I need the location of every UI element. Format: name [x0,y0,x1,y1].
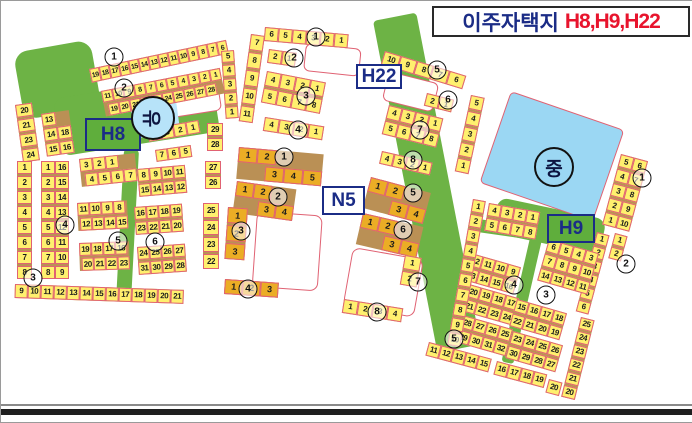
lot-cell: 10 [616,216,633,232]
lot-row: 3 [17,191,32,204]
lot-cell: 5 [179,145,193,159]
lot-cell: 4 [465,111,482,128]
lot-cell: 4 [292,29,307,44]
lot-cell: 16 [55,161,69,174]
district-marker-h8-4: 4 [56,216,75,235]
lot-cell: 4 [222,64,236,77]
lot-cell: 9 [55,266,69,279]
lot-cell: 16 [134,206,147,220]
district-marker-h8-1: 1 [105,48,124,67]
lot-row: 1 [471,199,486,214]
lot-cell: 5 [278,28,293,43]
lot-cell: 1 [403,255,422,272]
district-marker-h22-7: 7 [411,121,430,140]
map-frame: 1918171615141312111098765432111109876543… [0,0,692,423]
lot-cell: 23 [203,237,219,252]
lot-block-h8-col-ne: 54321 [221,50,239,119]
lot-cell: 9 [149,167,162,181]
lot-cell: 8 [113,200,126,214]
lot-row: 11 [239,105,255,123]
lot-row: 24 [203,220,219,235]
district-marker-h8-6: 6 [146,233,165,252]
lot-cell: 8 [453,302,468,317]
lot-block-h8-col-e3: 25242322 [203,203,219,269]
lot-row: 23 [571,344,587,359]
lot-cell: 13 [162,181,175,195]
lot-cell: 5 [460,258,475,273]
lot-cell: 31 [138,261,151,275]
lot-cell: 7 [249,34,265,52]
district-marker-n5-4: 4 [239,280,258,299]
lot-row: 710 [41,251,69,264]
lot-block-h22-col-e: 54321 [455,95,485,174]
lot-cell: 6 [17,236,32,249]
district-marker-h22-4: 4 [289,121,308,140]
lot-cell: 19 [79,243,91,256]
lot-row: 27 [205,161,221,174]
district-marker-h9-1: 1 [633,169,652,188]
lot-cell: 16 [59,140,75,155]
lot-cell: 28 [174,259,187,273]
bottom-rule-thin [1,404,692,406]
lot-cell: 1 [307,124,324,140]
district-marker-h9-3: 3 [537,286,556,305]
lot-cell: 30 [150,260,163,274]
lot-cell: 20 [545,379,562,396]
area-label-h9: H9 [547,214,595,243]
lot-cell: 13 [41,112,57,127]
lot-cell: 18 [551,310,567,326]
lot-cell: 3 [461,126,478,143]
lot-block-h8-col-e1: 2928 [207,123,223,151]
lot-block-h8-row-765: 765 [155,145,192,162]
lot-cell: 26 [205,176,221,189]
lot-cell: 7 [41,251,55,264]
lot-row: 7 [17,251,32,264]
lot-cell: 23 [571,344,587,359]
lot-cell: 28 [205,83,218,97]
lot-cell: 28 [207,138,223,151]
lot-cell: 10 [55,251,69,264]
lot-cell: 8 [41,266,55,279]
lot-cell: 3 [41,191,55,204]
lot-row: 3 [466,229,481,244]
lot-cell: 7 [455,288,470,303]
lot-cell: 12 [174,180,187,194]
lot-cell: 11 [239,105,255,123]
lot-cell: 3 [466,229,481,244]
lot-cell: 6 [41,236,55,249]
lot-row: 3 [223,78,237,91]
lot-cell: 15 [55,176,69,189]
facility-label-kindergarten: 유 [139,109,166,126]
lot-cell: 18 [57,125,73,140]
lot-cell: 14 [79,286,92,300]
lot-row: 4 [222,64,236,77]
lot-cell: 21 [159,219,172,233]
lot-row: 15141312 [138,180,187,197]
lot-cell: 29 [162,259,175,273]
lot-row: 4 [465,111,482,128]
lot-row: 1418 [43,125,73,142]
lot-cell: 6 [446,71,466,89]
lot-row: 5 [17,221,32,234]
lot-row: 4 [17,206,32,219]
lot-row: 5 [460,258,475,273]
lot-cell: 1 [185,120,200,135]
lot-cell: 22 [203,254,219,269]
lot-row: 10 [241,87,257,105]
lot-row: 2 [468,214,483,229]
lot-row: 2 [458,142,475,159]
lot-row: 116 [41,161,69,174]
lot-row: 23 [19,132,38,147]
lot-cell: 2 [458,142,475,159]
lot-row: 314 [41,191,69,204]
lot-cell: 4 [386,306,403,322]
lot-row: 1 [594,232,610,247]
lot-cell: 11 [40,285,53,299]
lot-row: 22 [568,358,584,373]
lot-block-h8-col-e2: 2726 [205,161,221,189]
area-label-h22: H22 [356,64,402,89]
lot-row: 23222120 [135,219,184,235]
lot-row: 1 [455,158,472,175]
lot-row: 8 [453,302,468,317]
lot-cell: 11 [55,236,69,249]
district-marker-h22-3: 3 [297,87,316,106]
lot-row: 765 [155,145,192,162]
lot-cell: 19 [144,289,157,303]
lot-cell: 7 [17,251,32,264]
lot-row: 2 [224,92,238,105]
lot-row: 12 [235,181,297,204]
lot-row: 9101112131415161718192021 [15,284,184,304]
lot-cell: 2 [92,156,106,170]
lot-cell: 1 [238,147,258,164]
lot-row: 20212223 [82,256,130,271]
district-marker-n5-8: 8 [368,303,387,322]
district-marker-h9-5: 5 [445,330,464,349]
facility-circle-kindergarten: 유 [131,96,175,140]
lot-cell: 25 [578,317,594,332]
lot-cell: 2 [224,92,238,105]
lot-cell: 1 [41,161,55,174]
lot-cell: 3 [223,78,237,91]
map-shape-white [252,211,323,291]
lot-row: 7 [249,34,265,52]
lot-block-h9-col-se: 252423222120 [561,317,594,400]
lot-cell: 15 [92,287,105,301]
district-marker-h22-5: 5 [428,61,447,80]
lot-cell: 13 [92,217,105,231]
lot-cell: 13 [66,286,79,300]
lot-cell: 5 [17,221,32,234]
lot-cell: 1 [471,199,486,214]
lot-row: 21 [17,117,36,132]
lot-block-h22-col-w: 7891011 [239,34,265,123]
lot-row: 8 [246,52,262,70]
lot-cell: 5 [302,170,322,187]
lot-row: 215 [41,176,69,189]
lot-cell: 24 [203,220,219,235]
lot-block-h8-blk-e: 1617181923222120 [134,204,184,235]
lot-block-h8-blk-b: 11109812131415 [77,200,128,231]
lot-cell: 21 [565,371,581,386]
lot-row: 5 [468,95,485,112]
lot-block-h22-blk-3: 43215678 [261,71,326,114]
lot-cell: 27 [173,244,186,258]
lot-cell: 23 [118,256,130,269]
district-marker-n5-3: 3 [232,222,251,241]
lot-cell: 1 [17,161,32,174]
lot-cell: 29 [207,123,223,136]
lot-cell: 5 [41,221,55,234]
lot-cell: 1 [334,33,349,48]
lot-cell: 1 [455,158,472,175]
map-shape-white [303,43,362,77]
lot-row: 6 [576,300,592,315]
lot-cell: 18 [158,204,171,218]
lot-cell: 17 [146,205,159,219]
district-marker-n5-2: 2 [269,188,288,207]
map-canvas: 1918171615141312111098765432111109876543… [1,1,692,422]
lot-cell: 3 [17,191,32,204]
area-label-n5: N5 [322,186,365,215]
district-marker-h9-2: 2 [617,255,636,274]
lot-row: 3 [461,126,478,143]
lot-row: 25 [203,203,219,218]
lot-cell: 5 [221,50,235,63]
lot-cell: 12 [80,217,93,231]
lot-block-h8-col-sw: 12345678 [17,161,32,279]
lot-cell: 8 [246,52,262,70]
lot-cell: 4 [283,168,303,185]
lot-row: 12131415 [80,215,129,230]
lot-block-h8-blk-d: 89101115141312 [137,165,187,197]
facility-circle-middle-school: 중 [534,147,574,187]
lot-cell: 19 [547,324,563,340]
district-marker-n5-1: 1 [275,148,294,167]
lot-cell: 3 [79,158,93,172]
district-marker-h9-4: 4 [505,276,524,295]
lot-row: 22 [203,254,219,269]
lot-row: 2 [17,176,32,189]
lot-row: 3 [224,243,245,260]
lot-cell: 1 [525,210,540,225]
lot-cell: 3 [260,282,279,298]
lot-row: 20 [545,379,562,396]
lot-row: 26 [205,176,221,189]
lot-cell: 16 [105,287,118,301]
lot-cell: 9 [15,284,28,298]
lot-block-h9-row-s3: 20 [545,379,562,396]
title-block-codes: H8,H9,H22 [565,10,660,34]
lot-cell: 23 [19,132,38,147]
lot-row: 29 [207,123,223,136]
lot-cell: 21 [94,257,106,270]
lot-cell: 22 [106,257,118,270]
lot-cell: 11 [173,165,186,179]
lot-cell: 1 [105,155,119,169]
lot-cell: 2 [468,214,483,229]
lot-row: 89 [41,266,69,279]
lot-cell: 2 [41,176,55,189]
map-title-box: 이주자택지 H8,H9,H22 [432,6,690,37]
lot-cell: 3 [224,243,245,260]
district-marker-h22-1: 1 [307,28,326,47]
lot-cell: 1 [225,106,239,119]
lot-cell: 1 [209,68,222,82]
lot-cell: 9 [101,201,114,215]
district-marker-h8-5: 5 [109,232,128,251]
lot-cell: 6 [576,300,592,315]
lot-cell: 4 [85,172,99,186]
district-marker-h8-3: 3 [24,269,43,288]
lot-row: 6 [17,236,32,249]
lot-cell: 4 [463,243,478,258]
lot-cell: 10 [241,87,257,105]
lot-block-h8-row-s: 9101112131415161718192021 [15,284,184,304]
lot-cell: 20 [157,289,170,303]
lot-row: 1 [403,255,422,272]
lot-cell: 12 [53,285,66,299]
lot-cell: 7 [123,168,137,182]
lot-row: 13 [41,110,71,127]
lot-cell: 27 [543,356,559,372]
lot-row: 345 [264,166,322,186]
lot-cell: 20 [82,258,94,271]
lot-cell: 26 [547,342,563,358]
lot-row: 111098 [77,200,128,216]
title-korean: 이주자택지 [462,7,559,37]
lot-row: 20 [15,103,34,118]
district-marker-h8-2: 2 [115,79,134,98]
lot-cell: 25 [203,203,219,218]
lot-cell: 21 [170,289,183,303]
lot-cell: 15 [476,355,492,372]
lot-cell: 10 [89,202,102,216]
district-marker-n5-7: 7 [409,273,428,292]
lot-cell: 5 [97,171,111,185]
lot-cell: 20 [15,103,34,118]
lot-cell: 14 [104,216,117,230]
lot-row: 25 [578,317,594,332]
lot-row: 5 [221,50,235,63]
district-marker-n5-6: 6 [394,221,413,240]
lot-row: 611 [41,236,69,249]
district-marker-h22-6: 6 [439,91,458,110]
lot-cell: 21 [17,117,36,132]
lot-block-h8-col-w2: 1314181516 [41,110,75,156]
lot-row: 1 [612,233,628,248]
district-marker-h22-8: 8 [404,151,423,170]
lot-cell: 20 [171,219,184,233]
district-marker-h22-2: 2 [285,49,304,68]
facility-label-middle-school: 중 [545,154,562,181]
lot-row: 7 [455,288,470,303]
lot-cell: 1 [612,233,628,248]
lot-row: 1 [225,106,239,119]
lot-cell: 3 [264,166,284,183]
lot-cell: 17 [118,288,131,302]
lot-row: 20 [561,385,577,400]
lot-row: 1 [17,161,32,174]
lot-cell: 1 [594,232,610,247]
lot-cell: 9 [620,201,637,217]
lot-cell: 14 [55,191,69,204]
lot-cell: 18 [131,288,144,302]
bottom-rule-thick [1,409,692,415]
lot-row: 21 [565,371,581,386]
lot-cell: 8 [523,225,538,240]
lot-cell: 5 [468,95,485,112]
lot-cell: 20 [561,385,577,400]
lot-row: 28 [207,138,223,151]
lot-cell: 6 [264,27,279,42]
lot-cell: 8 [623,187,640,203]
lot-cell: 24 [575,331,591,346]
lot-cell: 4 [41,206,55,219]
lot-row: 4 [463,243,478,258]
lot-block-h8-blk-a: 3214567 [79,153,138,187]
lot-row: 23 [203,237,219,252]
lot-cell: 11 [77,202,90,216]
lot-cell: 9 [244,70,260,88]
lot-cell: 18 [91,242,103,255]
lot-cell: 4 [17,206,32,219]
lot-cell: 19 [170,204,183,218]
lot-cell: 8 [137,168,150,182]
lot-row: 6 [458,273,473,288]
lot-cell: 19 [531,371,547,388]
lot-row: 16171819 [134,204,183,220]
lot-cell: 6 [458,273,473,288]
lot-cell: 2 [17,176,32,189]
lot-cell: 22 [568,358,584,373]
lot-cell: 27 [205,161,221,174]
lot-cell: 6 [110,169,124,183]
lot-cell: 15 [138,183,151,197]
lot-cell: 1 [235,181,255,198]
lot-cell: 10 [161,166,174,180]
lot-row: 9 [244,70,260,88]
lot-row: 24 [575,331,591,346]
lot-cell: 23 [135,221,148,235]
lot-cell: 14 [150,182,163,196]
lot-row: 31302928 [138,259,187,275]
district-marker-n5-5: 5 [404,184,423,203]
lot-cell: 4 [405,205,426,224]
lot-cell: 15 [116,215,129,229]
